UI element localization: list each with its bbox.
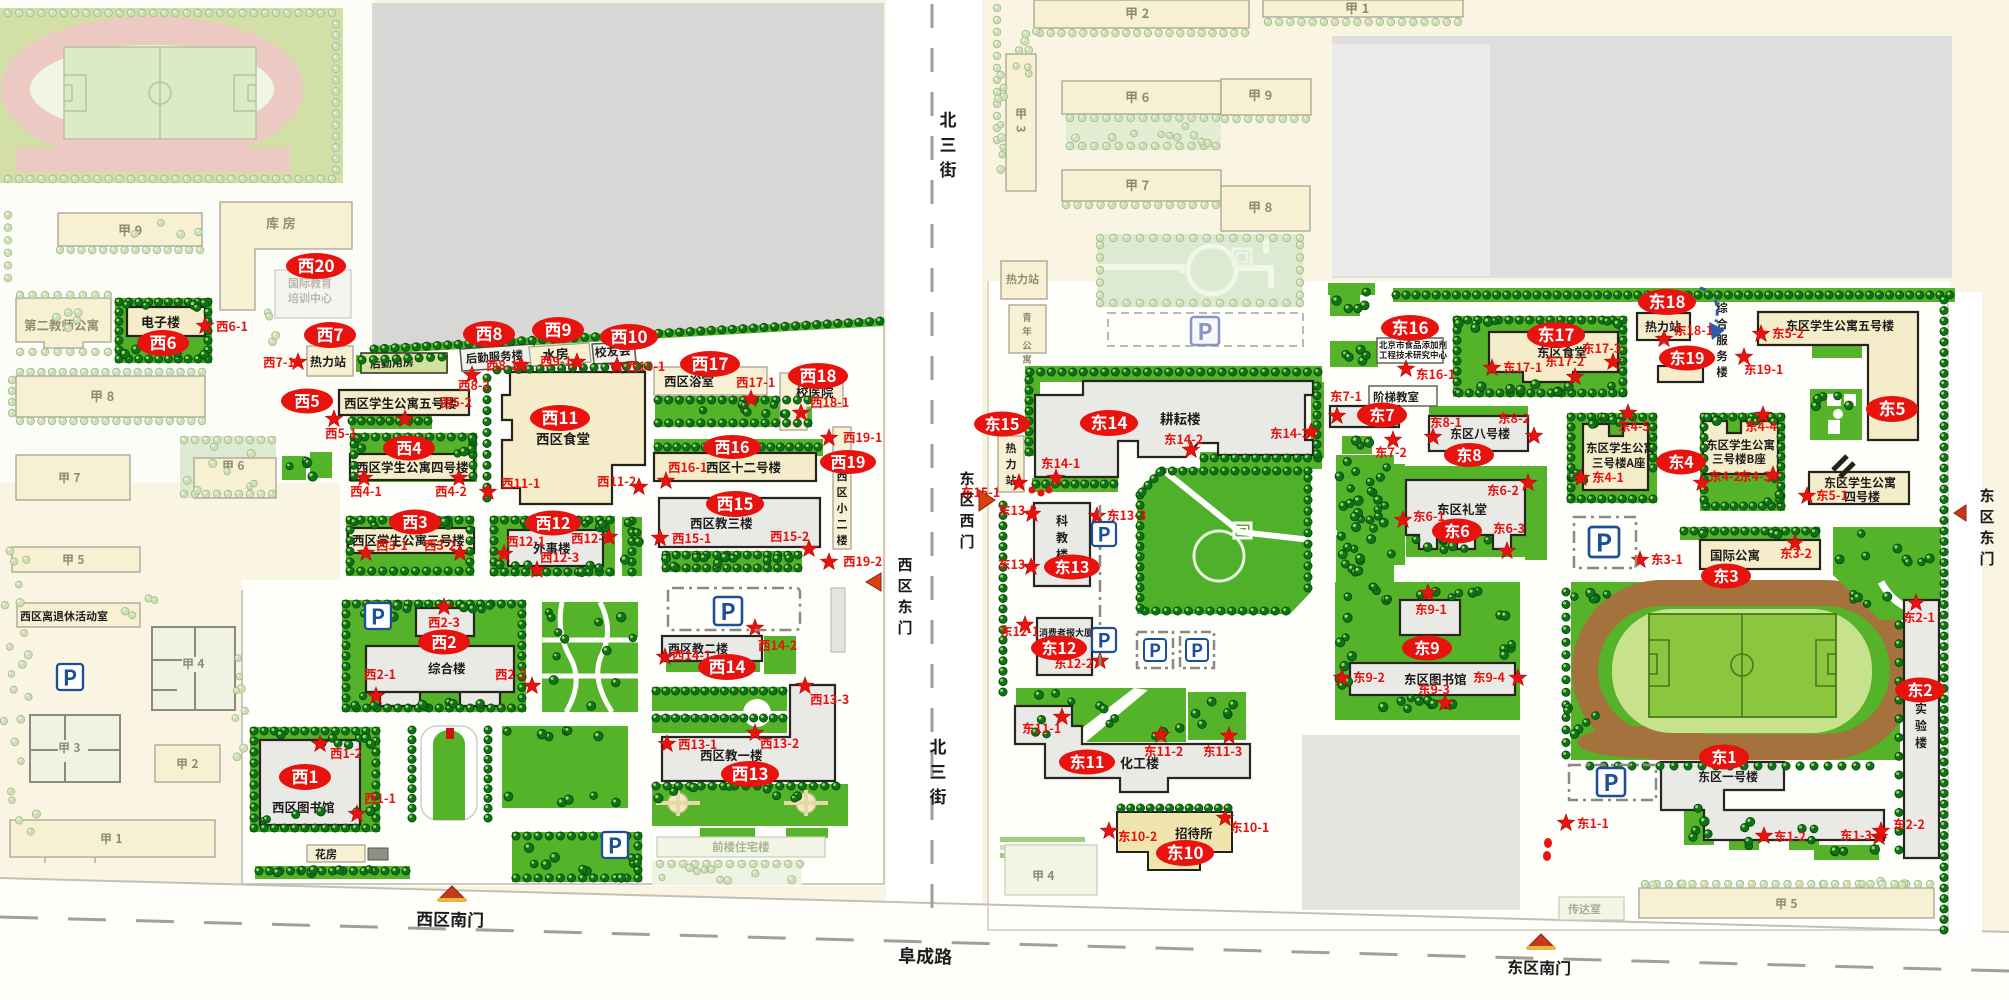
svg-text:前楼住宅楼: 前楼住宅楼 xyxy=(712,839,770,855)
svg-text:西12-3: 西12-3 xyxy=(540,547,579,566)
svg-text:西区十二号楼: 西区十二号楼 xyxy=(706,457,782,476)
svg-text:东7-2: 东7-2 xyxy=(1375,442,1407,461)
svg-text:青年公寓: 青年公寓 xyxy=(1020,310,1034,366)
svg-text:东7-1: 东7-1 xyxy=(1330,386,1362,405)
svg-text:东1: 东1 xyxy=(1711,744,1736,768)
svg-text:西17: 西17 xyxy=(691,350,728,375)
svg-text:西14-2: 西14-2 xyxy=(758,635,797,654)
svg-text:东9-1: 东9-1 xyxy=(1415,599,1447,618)
svg-text:培训中心: 培训中心 xyxy=(288,290,332,306)
svg-text:西11: 西11 xyxy=(541,404,578,429)
svg-text:P: P xyxy=(1097,519,1110,548)
svg-text:东13-2: 东13-2 xyxy=(998,500,1037,519)
svg-text:西18: 西18 xyxy=(799,362,836,387)
svg-text:西7: 西7 xyxy=(316,321,343,346)
svg-text:东1-1: 东1-1 xyxy=(1577,813,1609,832)
svg-text:西12: 西12 xyxy=(536,510,571,534)
svg-text:西7-1: 西7-1 xyxy=(263,352,295,371)
svg-text:东8: 东8 xyxy=(1456,442,1481,466)
svg-text:耕耘楼: 耕耘楼 xyxy=(1160,408,1201,428)
svg-text:实验楼: 实验楼 xyxy=(1913,700,1930,751)
svg-text:西18-1: 西18-1 xyxy=(810,392,849,411)
svg-text:东9: 东9 xyxy=(1414,635,1439,659)
svg-text:东6: 东6 xyxy=(1444,518,1469,542)
svg-text:西4-2: 西4-2 xyxy=(435,481,467,500)
svg-text:东6-2: 东6-2 xyxy=(1487,480,1519,499)
svg-text:西10-1: 西10-1 xyxy=(626,356,665,375)
svg-text:西16: 西16 xyxy=(715,434,750,458)
svg-text:西17-1: 西17-1 xyxy=(736,372,775,391)
svg-text:P: P xyxy=(1097,625,1110,654)
svg-text:东5: 东5 xyxy=(1878,395,1905,420)
svg-text:西3: 西3 xyxy=(402,509,427,533)
svg-text:西12-2: 西12-2 xyxy=(571,528,610,547)
svg-text:西6-1: 西6-1 xyxy=(216,316,248,335)
svg-text:西2-2: 西2-2 xyxy=(495,664,527,683)
svg-text:东10-2: 东10-2 xyxy=(1118,826,1157,845)
svg-text:西13: 西13 xyxy=(731,760,768,785)
svg-text:甲 9: 甲 9 xyxy=(1248,85,1272,104)
svg-text:西19-1: 西19-1 xyxy=(843,427,882,446)
svg-text:东2: 东2 xyxy=(1907,677,1932,701)
svg-text:东6-3: 东6-3 xyxy=(1493,518,1525,537)
svg-text:西2: 西2 xyxy=(431,629,456,653)
svg-text:东3-2: 东3-2 xyxy=(1780,543,1812,562)
svg-text:西8: 西8 xyxy=(475,320,502,345)
svg-text:西1-1: 西1-1 xyxy=(364,788,396,807)
svg-text:东区东门: 东区东门 xyxy=(1977,485,1998,569)
svg-text:北三街: 北三街 xyxy=(926,733,951,808)
svg-text:热力站: 热力站 xyxy=(310,353,346,370)
svg-text:甲 1: 甲 1 xyxy=(100,830,122,847)
svg-text:西20: 西20 xyxy=(297,252,334,277)
svg-text:东4-4: 东4-4 xyxy=(1745,416,1778,435)
svg-text:甲 5: 甲 5 xyxy=(1775,895,1797,912)
svg-text:东11-1: 东11-1 xyxy=(1022,718,1061,737)
svg-text:甲 2: 甲 2 xyxy=(176,755,198,772)
svg-text:西区食堂: 西区食堂 xyxy=(536,428,590,448)
svg-text:东3-1: 东3-1 xyxy=(1651,549,1683,568)
svg-text:西15-1: 西15-1 xyxy=(672,528,711,547)
svg-text:东2-1: 东2-1 xyxy=(1903,607,1935,626)
svg-text:西1: 西1 xyxy=(291,763,318,788)
svg-text:东18: 东18 xyxy=(1648,288,1685,313)
svg-text:东12: 东12 xyxy=(1042,635,1077,659)
svg-text:甲 8: 甲 8 xyxy=(90,386,115,405)
svg-text:甲 8: 甲 8 xyxy=(1248,197,1273,216)
svg-text:P: P xyxy=(1149,637,1161,663)
svg-text:甲 7: 甲 7 xyxy=(1125,175,1150,194)
svg-text:北三街: 北三街 xyxy=(936,106,961,181)
svg-text:东11-2: 东11-2 xyxy=(1144,741,1183,760)
svg-text:P: P xyxy=(720,593,735,627)
svg-text:库 房: 库 房 xyxy=(266,213,296,232)
svg-text:甲 5: 甲 5 xyxy=(62,551,84,568)
svg-text:东4-2: 东4-2 xyxy=(1709,466,1741,485)
svg-text:西14: 西14 xyxy=(708,653,745,678)
svg-text:东14: 东14 xyxy=(1090,409,1127,434)
svg-text:东11-3: 东11-3 xyxy=(1203,741,1242,760)
svg-text:东区一号楼: 东区一号楼 xyxy=(1698,768,1758,785)
svg-text:甲 1: 甲 1 xyxy=(1345,0,1369,17)
svg-text:东区西门: 东区西门 xyxy=(957,468,978,552)
svg-text:国际公寓: 国际公寓 xyxy=(1710,545,1760,564)
svg-text:西2-1: 西2-1 xyxy=(364,664,396,683)
svg-text:西5: 西5 xyxy=(294,388,319,412)
svg-text:东16: 东16 xyxy=(1391,314,1428,339)
svg-text:西4-1: 西4-1 xyxy=(350,481,382,500)
svg-text:甲 6: 甲 6 xyxy=(1125,87,1150,106)
svg-text:东9-3: 东9-3 xyxy=(1418,679,1450,698)
svg-text:东13-1: 东13-1 xyxy=(998,554,1037,573)
svg-text:东4-3: 东4-3 xyxy=(1739,466,1771,485)
svg-text:甲 4: 甲 4 xyxy=(1032,867,1054,884)
svg-text:西9: 西9 xyxy=(544,316,571,341)
svg-text:西区离退休活动室: 西区离退休活动室 xyxy=(20,608,108,624)
svg-text:甲 9: 甲 9 xyxy=(118,220,142,239)
svg-text:西16-1: 西16-1 xyxy=(668,457,707,476)
svg-text:甲 3: 甲 3 xyxy=(58,739,80,756)
svg-text:东8-1: 东8-1 xyxy=(1430,412,1462,431)
svg-text:西11-2: 西11-2 xyxy=(597,471,636,490)
svg-text:西13-2: 西13-2 xyxy=(760,733,799,752)
svg-text:西6: 西6 xyxy=(149,329,176,354)
svg-text:东17-1: 东17-1 xyxy=(1503,357,1542,376)
svg-text:P: P xyxy=(63,661,77,692)
svg-text:东15: 东15 xyxy=(985,411,1020,435)
svg-text:阜成路: 阜成路 xyxy=(898,942,953,969)
svg-text:东14-1: 东14-1 xyxy=(1041,453,1080,472)
svg-text:东14-2: 东14-2 xyxy=(1164,429,1203,448)
svg-text:甲 3: 甲 3 xyxy=(1013,105,1030,132)
svg-text:东4: 东4 xyxy=(1668,449,1693,473)
svg-text:工程技术研究中心: 工程技术研究中心 xyxy=(1379,349,1448,361)
svg-text:甲 4: 甲 4 xyxy=(182,655,204,672)
svg-text:东19: 东19 xyxy=(1670,345,1705,369)
svg-text:东5-1: 东5-1 xyxy=(1816,485,1848,504)
svg-text:东7: 东7 xyxy=(1369,402,1394,426)
svg-text:东11: 东11 xyxy=(1070,749,1105,773)
svg-text:P: P xyxy=(1596,524,1612,560)
svg-text:东9-2: 东9-2 xyxy=(1353,667,1385,686)
svg-text:东5-2: 东5-2 xyxy=(1772,323,1804,342)
svg-text:热力站: 热力站 xyxy=(1006,271,1039,287)
svg-text:P: P xyxy=(608,829,622,860)
svg-text:花房: 花房 xyxy=(315,846,337,862)
svg-text:东12-1: 东12-1 xyxy=(1000,621,1039,640)
svg-text:P: P xyxy=(1191,637,1203,663)
svg-text:东8-2: 东8-2 xyxy=(1498,408,1530,427)
svg-text:东17-2: 东17-2 xyxy=(1545,351,1584,370)
svg-text:东17-3: 东17-3 xyxy=(1582,338,1621,357)
svg-text:东区学生公寓: 东区学生公寓 xyxy=(1586,440,1655,456)
svg-text:东16-1: 东16-1 xyxy=(1416,364,1455,383)
svg-text:西10: 西10 xyxy=(610,323,647,348)
svg-text:西5-2: 西5-2 xyxy=(440,392,472,411)
svg-text:东14-3: 东14-3 xyxy=(1270,423,1309,442)
svg-text:东3: 东3 xyxy=(1713,563,1738,587)
svg-text:西9-1: 西9-1 xyxy=(540,351,572,370)
svg-text:西13-1: 西13-1 xyxy=(678,734,717,753)
svg-text:东17: 东17 xyxy=(1537,321,1574,346)
svg-text:西4: 西4 xyxy=(396,435,421,459)
svg-text:西1-2: 西1-2 xyxy=(330,743,362,762)
svg-text:东9-4: 东9-4 xyxy=(1473,667,1506,686)
svg-text:西3-2: 西3-2 xyxy=(424,535,456,554)
svg-text:东2-2: 东2-2 xyxy=(1893,814,1925,833)
svg-text:三号楼B座: 三号楼B座 xyxy=(1712,451,1766,467)
svg-text:西区南门: 西区南门 xyxy=(416,905,485,931)
svg-text:P: P xyxy=(1197,313,1212,347)
svg-text:甲 2: 甲 2 xyxy=(1125,3,1149,22)
svg-text:西13-3: 西13-3 xyxy=(810,689,849,708)
svg-text:西15: 西15 xyxy=(716,490,753,515)
svg-text:西区小二楼: 西区小二楼 xyxy=(834,468,850,548)
svg-text:东4-1: 东4-1 xyxy=(1592,467,1624,486)
svg-text:西3-1: 西3-1 xyxy=(376,535,408,554)
svg-text:东10: 东10 xyxy=(1166,839,1203,864)
svg-text:西5-1: 西5-1 xyxy=(325,423,357,442)
svg-text:西15-2: 西15-2 xyxy=(770,526,809,545)
svg-text:东1-3: 东1-3 xyxy=(1840,825,1872,844)
svg-text:西19-2: 西19-2 xyxy=(843,551,882,570)
svg-text:甲 7: 甲 7 xyxy=(58,469,80,486)
svg-text:东1-2: 东1-2 xyxy=(1774,826,1806,845)
svg-text:四号楼: 四号楼 xyxy=(1844,488,1880,505)
svg-text:西19: 西19 xyxy=(831,449,866,473)
svg-text:西区东门: 西区东门 xyxy=(895,554,916,638)
svg-text:P: P xyxy=(1603,764,1618,798)
svg-text:综合楼: 综合楼 xyxy=(428,658,466,677)
svg-text:东10-1: 东10-1 xyxy=(1230,817,1269,836)
svg-text:东13: 东13 xyxy=(1055,554,1090,578)
svg-text:东18-1: 东18-1 xyxy=(1674,320,1713,339)
svg-text:西11-1: 西11-1 xyxy=(501,473,540,492)
svg-text:东区南门: 东区南门 xyxy=(1507,954,1572,979)
svg-text:西8-1: 西8-1 xyxy=(486,355,518,374)
svg-text:P: P xyxy=(371,600,385,631)
svg-text:东19-1: 东19-1 xyxy=(1744,359,1783,378)
svg-text:第二教师公寓: 第二教师公寓 xyxy=(24,315,99,334)
svg-text:东4-5: 东4-5 xyxy=(1618,416,1650,435)
svg-text:传达室: 传达室 xyxy=(1568,901,1601,917)
